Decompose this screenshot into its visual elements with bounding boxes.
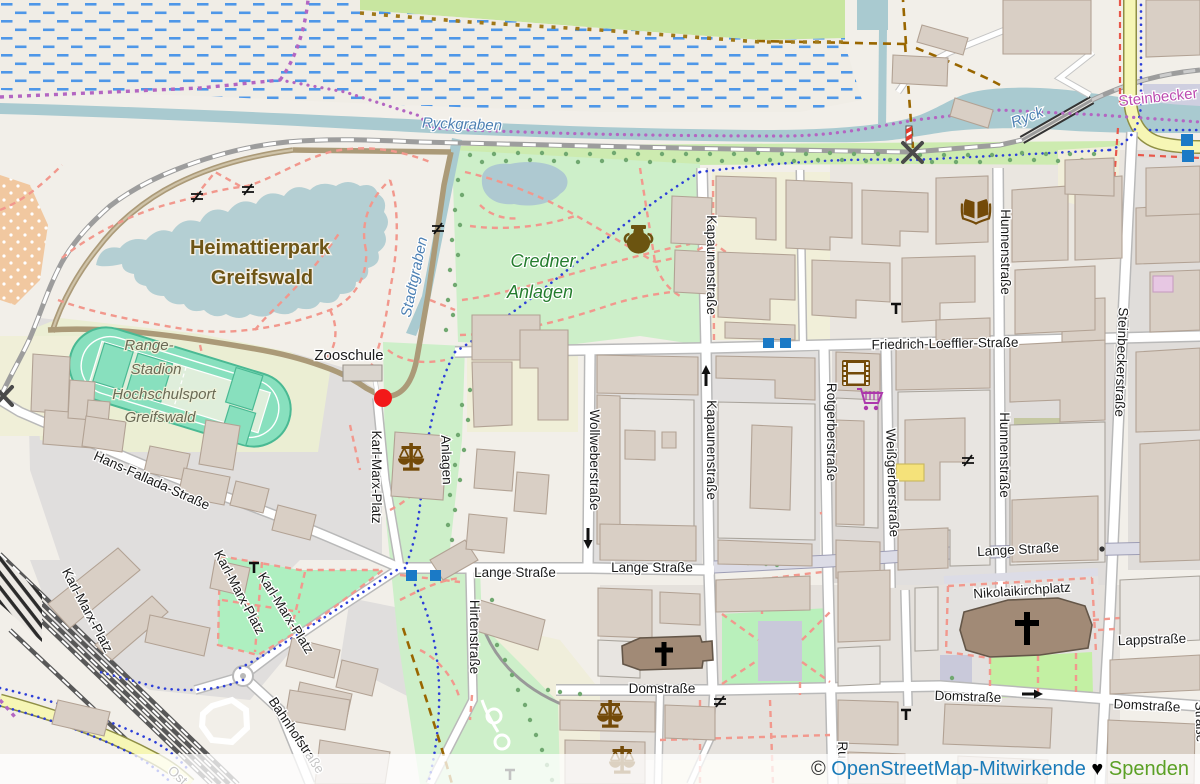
svg-text:Hunnenstraße: Hunnenstraße [998,209,1013,295]
svg-text:Range-: Range- [124,337,173,354]
svg-text:Hunnenstraße: Hunnenstraße [997,412,1012,498]
svg-text:Kapaunenstraße: Kapaunenstraße [704,215,719,315]
svg-text:Rotgerberstraße: Rotgerberstraße [824,383,839,481]
svg-text:Kapaunenstraße: Kapaunenstraße [704,400,719,500]
svg-text:Domstraße: Domstraße [934,688,1001,705]
svg-text:Wollweberstraße: Wollweberstraße [587,409,602,510]
svg-text:Anlagen: Anlagen [506,282,573,302]
svg-text:Lappstraße: Lappstraße [1118,631,1187,648]
svg-text:Heimattierpark: Heimattierpark [190,237,331,259]
svg-text:Karl-Marx-Platz: Karl-Marx-Platz [369,430,384,523]
svg-text:Credner: Credner [510,251,576,271]
svg-text:Friedrich-Loeffler-Straße: Friedrich-Loeffler-Straße [871,335,1018,353]
svg-text:Hirtenstraße: Hirtenstraße [467,600,482,674]
svg-text:Zooschule: Zooschule [314,347,383,364]
svg-text:Anlagen: Anlagen [438,435,455,485]
svg-text:Greifswald: Greifswald [125,409,197,426]
svg-text:Stadion: Stadion [131,361,182,378]
svg-text:Hochschulsport: Hochschulsport [112,386,216,403]
svg-text:Greifswald: Greifswald [211,267,313,289]
svg-text:© OpenStreetMap-Mitwirkende ♥: © OpenStreetMap-Mitwirkende ♥ Spenden [811,758,1189,780]
svg-text:Lange Straße: Lange Straße [611,560,693,575]
svg-text:Ryckgraben: Ryckgraben [422,115,503,135]
svg-text:Domstraße: Domstraße [629,681,696,696]
svg-text:Lange Straße: Lange Straße [474,565,556,580]
